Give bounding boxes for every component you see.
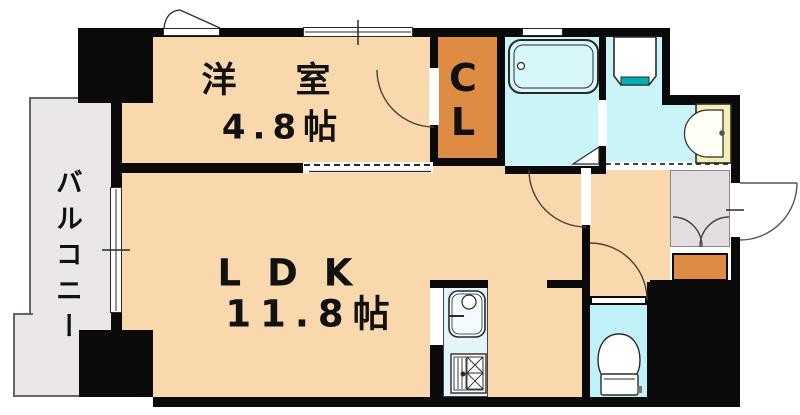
washing-machine-pan bbox=[614, 37, 656, 85]
bathtub bbox=[509, 40, 598, 93]
western-room-size: 4.8帖 bbox=[222, 109, 344, 146]
vanity-basin bbox=[685, 104, 732, 163]
balcony-label: バルコニー bbox=[51, 168, 81, 348]
bathtub-drain bbox=[518, 63, 525, 70]
stove-knob bbox=[461, 372, 465, 376]
ldk-label: LDK bbox=[218, 254, 379, 295]
closet-label-c: C bbox=[449, 56, 477, 100]
gas-stove bbox=[451, 354, 486, 393]
bathroom-folding-door-icon bbox=[573, 147, 599, 164]
kitchen-sink bbox=[449, 291, 485, 337]
toilet bbox=[598, 334, 642, 395]
door-arcs bbox=[377, 70, 797, 300]
entrance-swing-door bbox=[740, 183, 797, 240]
entrance-door-arc bbox=[740, 183, 797, 240]
sink-faucet bbox=[462, 295, 476, 309]
closet-label: C L bbox=[449, 56, 477, 144]
sliding-door-dashed-track bbox=[304, 164, 731, 172]
floor-plan: 洋 室 4.8帖 LDK 11.8帖 C L バルコニー bbox=[0, 0, 800, 415]
toilet-door-arc bbox=[590, 243, 647, 300]
western-room-door-arc bbox=[377, 70, 434, 127]
vanity-faucet bbox=[719, 130, 725, 136]
casement-window-fan-icon bbox=[164, 10, 220, 28]
entrance-storage-double-doors bbox=[673, 217, 729, 247]
toilet-seat bbox=[601, 374, 638, 395]
fixtures-overlay bbox=[0, 0, 800, 415]
ldk-door-arc bbox=[529, 170, 586, 227]
western-room-label: 洋 室 bbox=[201, 62, 342, 101]
closet-label-l: L bbox=[449, 100, 477, 144]
washer-pan-drain bbox=[621, 77, 649, 85]
ldk-size: 11.8帖 bbox=[225, 295, 398, 336]
toilet-handle bbox=[637, 386, 642, 393]
vanity-bowl bbox=[685, 110, 724, 157]
